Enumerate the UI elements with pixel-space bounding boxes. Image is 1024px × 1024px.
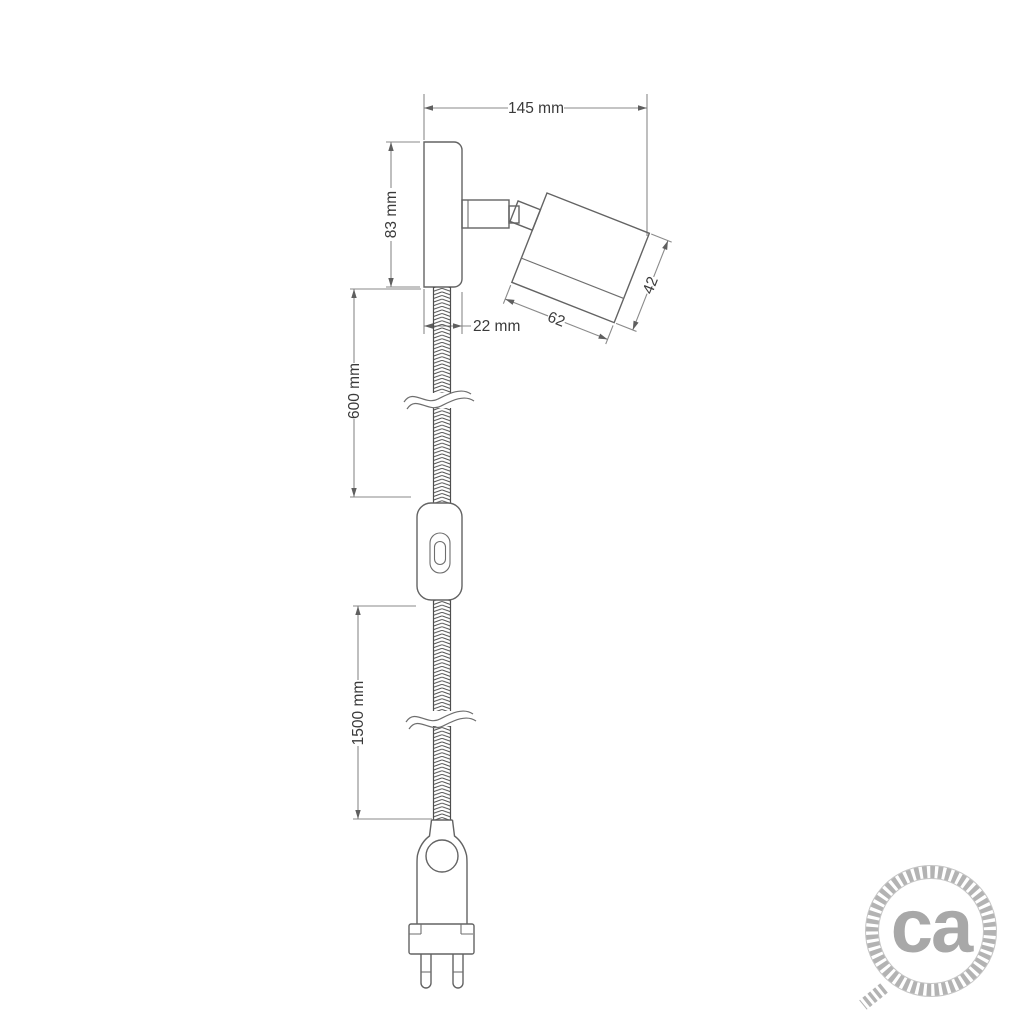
switch-rocker bbox=[435, 542, 446, 565]
dimension-base-height: 83 mm bbox=[383, 142, 420, 287]
dimension-lower-cable: 1500 mm bbox=[350, 606, 432, 819]
technical-drawing: 145 mm 83 mm 22 mm 600 mm 150 bbox=[0, 0, 1024, 1024]
dimension-overall-width: 145 mm bbox=[424, 94, 647, 236]
rope-tail-icon bbox=[863, 988, 884, 1005]
lower-cable-length-label: 1500 mm bbox=[350, 681, 367, 746]
wall-plate bbox=[424, 142, 462, 287]
drawing-canvas: 145 mm 83 mm 22 mm 600 mm 150 bbox=[0, 0, 1024, 1024]
dimension-spotlight-diameter: 42 bbox=[616, 234, 676, 333]
plug-base bbox=[409, 924, 474, 954]
overall-width-label: 145 mm bbox=[508, 100, 564, 117]
power-plug bbox=[409, 820, 474, 988]
switch-recess bbox=[430, 533, 450, 573]
plug-screw-circle bbox=[426, 840, 458, 872]
plug-pin-right bbox=[453, 954, 463, 988]
dimension-upper-cable: 600 mm bbox=[346, 289, 421, 497]
cable-break-upper bbox=[404, 391, 474, 409]
spotlight-diameter-label: 42 bbox=[640, 274, 662, 296]
lamp-arm bbox=[462, 200, 519, 228]
inline-switch bbox=[417, 503, 462, 600]
cable-break-lower bbox=[406, 711, 476, 729]
plug-pin-left bbox=[421, 954, 431, 988]
upper-cable-length-label: 600 mm bbox=[346, 363, 363, 419]
base-height-label: 83 mm bbox=[383, 191, 400, 238]
logo-monogram: ca bbox=[891, 884, 974, 969]
brand-logo: ca bbox=[863, 866, 997, 1006]
spotlight-body bbox=[512, 193, 650, 323]
dimension-spotlight-length: 62 bbox=[502, 285, 613, 348]
spotlight-length-label: 62 bbox=[545, 309, 567, 331]
braided-cable bbox=[434, 287, 451, 820]
base-depth-label: 22 mm bbox=[473, 318, 520, 335]
